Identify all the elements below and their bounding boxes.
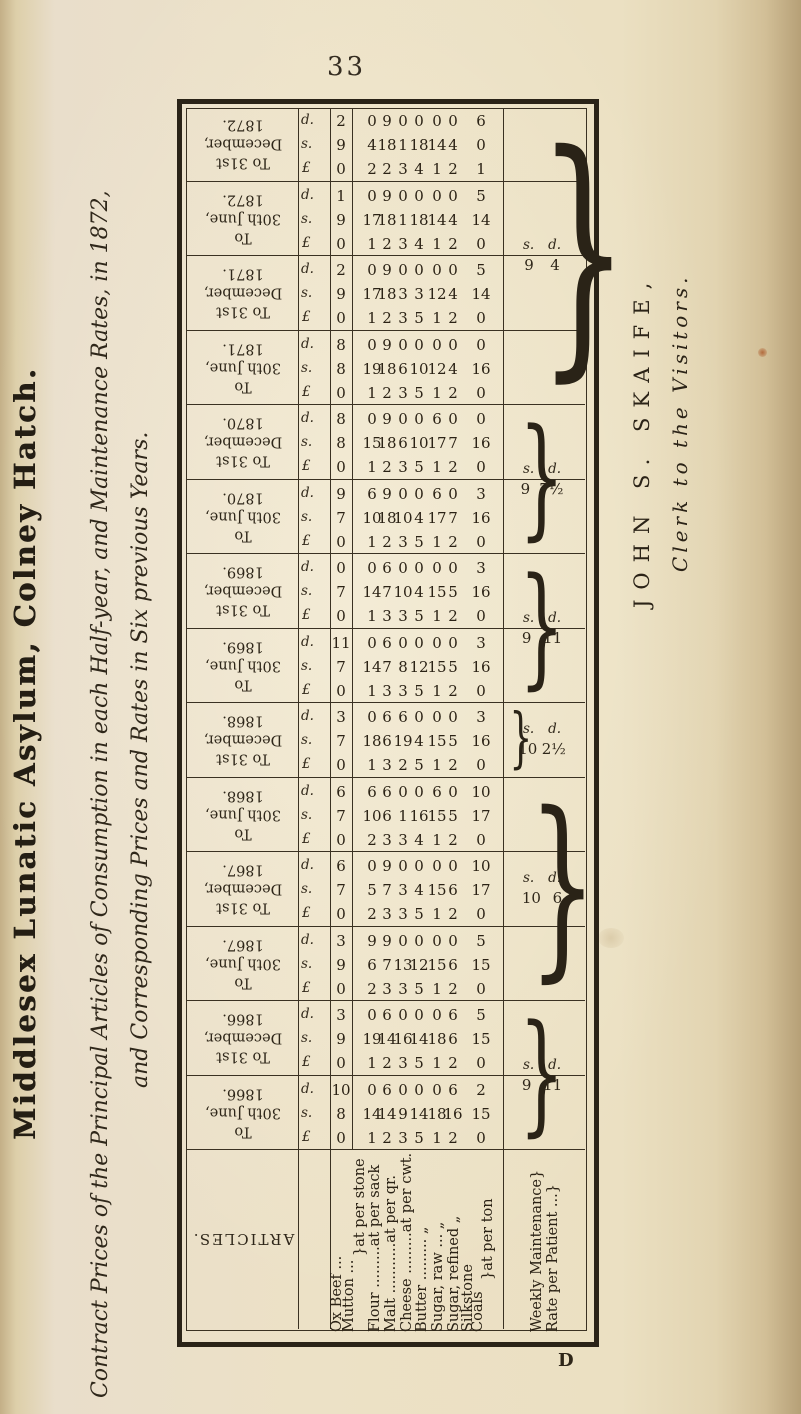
price-shillings: 6 [438,881,468,899]
period-header-line: 30th June, [205,357,281,376]
pence-label: d. [301,708,314,724]
shillings-label: s. [301,732,312,748]
price-pounds: 0 [326,905,356,923]
period-header-line: December, [204,432,282,451]
shillings-label: s. [301,136,312,152]
price-pence: 6 [466,112,496,130]
period-header: To30th June,1868. [190,777,296,852]
price-pounds: 2 [438,309,468,327]
price-pounds: 2 [438,235,468,253]
pounds-label: £ [302,756,311,772]
pence-label: d. [301,932,314,948]
pounds-label: £ [302,458,311,474]
period-header: To 31stDecember,1867. [190,851,296,926]
price-pounds: 0 [326,980,356,998]
price-shillings: 7 [326,807,356,825]
period-header-line: 1866. [222,1083,264,1102]
pounds-label: £ [302,160,311,176]
pounds-label: £ [302,235,311,251]
period-header: To30th June,1870. [190,479,296,554]
price-pounds: 0 [326,607,356,625]
price-pence: 3 [466,485,496,503]
period-header-line: To 31st [216,153,270,172]
period-header-line: 30th June, [205,953,281,972]
pounds-label: £ [302,309,311,325]
shillings-label: s. [301,360,312,376]
pence-label: d. [301,1081,314,1097]
shillings-label: s. [301,658,312,674]
rate-value: 106 [516,889,568,907]
price-pence: 11 [326,634,356,652]
period-header: To30th June,1867. [190,926,296,1001]
pence-label: d. [301,857,314,873]
period-header-line: 30th June, [205,1102,281,1121]
shillings-label: s. [301,881,312,897]
scanned-report-page: 33 Middlesex Lunatic Asylum, Colney Hatc… [0,0,801,1414]
price-pounds: 2 [438,905,468,923]
price-shillings: 17 [466,881,496,899]
rate-sd-header: s.d. [516,237,568,253]
period-header-line: To [234,525,251,544]
price-pence: 0 [438,336,468,354]
period-header-line: To 31st [216,600,270,619]
price-shillings: 4 [438,136,468,154]
price-shillings: 5 [438,807,468,825]
period-header-line: 1871. [222,264,264,283]
maintenance-rate: s.d.97½ [516,461,568,498]
period-header-line: 1867. [222,860,264,879]
rate-value: 97½ [516,480,568,498]
price-shillings: 8 [326,360,356,378]
price-shillings: 6 [438,956,468,974]
shillings-label: s. [301,211,312,227]
column-rule [298,108,299,1329]
shillings-label: s. [301,807,312,823]
period-header: To 31stDecember,1871. [190,255,296,330]
price-shillings: 16 [466,360,496,378]
price-pence: 2 [326,112,356,130]
price-pence: 9 [326,485,356,503]
price-pounds: 0 [466,384,496,402]
price-pounds: 0 [326,682,356,700]
price-shillings: 16 [466,509,496,527]
period-header: To 31stDecember,1869. [190,553,296,628]
shillings-label: s. [301,509,312,525]
period-header-line: December, [204,879,282,898]
price-pounds: 0 [466,458,496,476]
price-pence: 10 [466,783,496,801]
price-pence: 0 [438,932,468,950]
price-pence: 0 [466,410,496,428]
shillings-label: s. [301,956,312,972]
price-pounds: 1 [466,160,496,178]
price-pounds: 0 [466,533,496,551]
period-header-line: To 31st [216,749,270,768]
pounds-label: £ [302,533,311,549]
pounds-label: £ [302,607,311,623]
period-header-line: 1866. [222,1009,264,1028]
price-shillings: 5 [438,658,468,676]
period-header-line: 30th June, [205,506,281,525]
price-pence: 6 [438,1006,468,1024]
period-header: To 31stDecember,1872. [190,106,296,181]
pence-label: d. [301,410,314,426]
period-header-line: December, [204,1028,282,1047]
period-header-line: December, [204,134,282,153]
period-header: To30th June,1872. [190,181,296,256]
period-header: To30th June,1869. [190,628,296,703]
price-pence: 0 [438,485,468,503]
price-shillings: 0 [466,136,496,154]
price-pounds: 2 [438,458,468,476]
price-pounds: 0 [326,1054,356,1072]
price-pence: 0 [438,634,468,652]
period-header-line: 1870. [222,487,264,506]
pounds-label: £ [302,905,311,921]
price-shillings: 7 [326,509,356,527]
pounds-label: £ [302,682,311,698]
rate-sd-header: s.d. [516,721,568,737]
price-pounds: 0 [466,235,496,253]
maintenance-rate: s.d.911 [516,1057,568,1094]
price-pence: 10 [466,857,496,875]
period-header-line: To 31st [216,451,270,470]
period-header-line: To 31st [216,302,270,321]
price-pence: 3 [466,634,496,652]
price-shillings: 9 [326,956,356,974]
price-pence: 0 [438,559,468,577]
shillings-label: s. [301,285,312,301]
price-pounds: 2 [438,682,468,700]
price-pounds: 2 [438,756,468,774]
price-shillings: 7 [438,434,468,452]
price-pounds: 2 [438,160,468,178]
pence-label: d. [301,261,314,277]
price-shillings: 7 [326,658,356,676]
price-pence: 3 [466,708,496,726]
price-pence: 5 [466,1006,496,1024]
period-header-line: To [234,823,251,842]
price-pence: 5 [466,261,496,279]
price-pence: 3 [326,932,356,950]
price-pence: 8 [326,336,356,354]
pence-label: d. [301,187,314,203]
price-pounds: 0 [466,1054,496,1072]
shillings-label: s. [301,1105,312,1121]
price-pence: 1 [326,187,356,205]
price-shillings: 15 [466,1030,496,1048]
price-shillings: 4 [438,360,468,378]
article-name: Rate per Patient ...} [545,1155,563,1332]
signature-name: JOHN S. SKAIFE, [630,273,654,608]
price-pounds: 0 [466,309,496,327]
price-pounds: 2 [438,831,468,849]
price-shillings: 6 [438,1030,468,1048]
period-header: To 31stDecember,1870. [190,404,296,479]
period-header-line: December, [204,283,282,302]
period-header-line: To [234,674,251,693]
price-shillings: 7 [326,881,356,899]
pounds-label: £ [302,1129,311,1145]
price-shillings: 16 [466,732,496,750]
pounds-label: £ [302,1054,311,1070]
price-pence: 0 [466,336,496,354]
period-header-line: 1867. [222,934,264,953]
price-shillings: 16 [466,583,496,601]
signature-role: Clerk to the Visitors. [668,273,692,572]
period-header-line: 1869. [222,636,264,655]
rate-value: 102½ [516,740,568,758]
price-shillings: 9 [326,285,356,303]
articles-header-cell: ARTICLES. [190,1149,296,1330]
period-header: To 31stDecember,1868. [190,702,296,777]
foxing-spot [758,348,767,357]
period-header-line: 30th June, [205,208,281,227]
column-rule [503,108,504,1329]
period-header-line: 1869. [222,562,264,581]
price-shillings: 7 [326,583,356,601]
price-pounds: 0 [326,235,356,253]
price-pence: 3 [326,708,356,726]
shillings-label: s. [301,1030,312,1046]
price-pence: 6 [326,857,356,875]
shillings-label: s. [301,434,312,450]
period-header-line: 30th June, [205,655,281,674]
price-shillings: 5 [438,732,468,750]
maintenance-rate: s.d.911 [516,610,568,647]
price-shillings: 9 [326,211,356,229]
price-shillings: 16 [466,658,496,676]
price-pence: 0 [438,410,468,428]
rate-value: 911 [516,1076,568,1094]
price-shillings: 7 [438,509,468,527]
price-pence: 3 [326,1006,356,1024]
pence-label: d. [301,336,314,352]
pence-label: d. [301,783,314,799]
price-pounds: 0 [326,384,356,402]
period-header: To30th June,1866. [190,1075,296,1150]
price-shillings: 16 [466,434,496,452]
pence-label: d. [301,1006,314,1022]
period-header-line: To [234,376,251,395]
price-pence: 0 [438,783,468,801]
price-pounds: 0 [326,160,356,178]
page-number: 33 [327,52,366,82]
maintenance-rate: s.d.106 [516,870,568,907]
price-pence: 6 [326,783,356,801]
price-pence: 5 [466,932,496,950]
period-header-line: To 31st [216,1047,270,1066]
price-pounds: 0 [326,756,356,774]
period-header-line: 1872. [222,189,264,208]
price-pounds: 0 [466,980,496,998]
period-header-line: 1872. [222,115,264,134]
price-shillings: 14 [466,211,496,229]
rate-value: 94 [516,256,568,274]
price-shillings: 9 [326,136,356,154]
price-shillings: 8 [326,434,356,452]
price-pence: 6 [438,1081,468,1099]
printers-signature-mark: D [558,1350,574,1371]
table-title-line2: and Corresponding Prices and Rates in Si… [128,432,153,1088]
period-header: To30th June,1871. [190,330,296,405]
price-shillings: 4 [438,285,468,303]
price-pounds: 0 [466,831,496,849]
price-shillings: 15 [466,956,496,974]
price-shillings: 16 [438,1105,468,1123]
period-header-line: To [234,972,251,991]
price-pence: 0 [438,112,468,130]
price-pence: 8 [326,410,356,428]
foxing-spot [598,928,624,948]
period-header-line: 1871. [222,338,264,357]
price-pence: 0 [438,857,468,875]
price-pounds: 2 [438,980,468,998]
period-header-line: 1870. [222,413,264,432]
period-header-line: 30th June, [205,804,281,823]
price-pence: 2 [326,261,356,279]
price-pounds: 0 [466,607,496,625]
rate-value: 911 [516,629,568,647]
shillings-label: s. [301,583,312,599]
price-pence: 0 [326,559,356,577]
period-header-line: To [234,227,251,246]
price-pounds: 2 [438,607,468,625]
table-title-line1: Contract Prices of the Principal Article… [88,190,113,1398]
price-pounds: 0 [466,682,496,700]
price-pounds: 2 [438,384,468,402]
price-pence: 0 [438,187,468,205]
price-pence: 0 [438,708,468,726]
pence-label: d. [301,559,314,575]
rate-sd-header: s.d. [516,1057,568,1073]
price-pounds: 0 [326,831,356,849]
period-header-line: December, [204,581,282,600]
rate-sd-header: s.d. [516,870,568,886]
period-header-line: To [234,1121,251,1140]
price-pounds: 2 [438,533,468,551]
price-pence: 0 [438,261,468,279]
rate-sd-header: s.d. [516,461,568,477]
price-shillings: 14 [466,285,496,303]
price-pounds: 0 [326,533,356,551]
pounds-label: £ [302,831,311,847]
price-shillings: 7 [326,732,356,750]
price-pence: 2 [466,1081,496,1099]
price-pounds: 2 [438,1054,468,1072]
price-pounds: 0 [326,309,356,327]
period-header-line: To 31st [216,898,270,917]
price-shillings: 5 [438,583,468,601]
pence-label: d. [301,485,314,501]
pounds-label: £ [302,980,311,996]
period-header-line: 1868. [222,785,264,804]
price-pounds: 0 [466,905,496,923]
maintenance-rate: s.d.102½ [516,721,568,758]
period-header-line: 1868. [222,711,264,730]
price-pence: 5 [466,187,496,205]
price-shillings: 4 [438,211,468,229]
price-pounds: 2 [438,1129,468,1147]
pence-label: d. [301,634,314,650]
running-side-heading: Middlesex Lunatic Asylum, Colney Hatch. [8,367,42,1140]
maintenance-rate: s.d.94 [516,237,568,274]
price-shillings: 9 [326,1030,356,1048]
pence-label: d. [301,112,314,128]
pounds-label: £ [302,384,311,400]
price-pence: 3 [466,559,496,577]
price-shillings: 17 [466,807,496,825]
rate-sd-header: s.d. [516,610,568,626]
price-pounds: 0 [466,756,496,774]
period-header-line: December, [204,730,282,749]
article-name: }at per ton [480,1103,498,1332]
price-pounds: 0 [326,458,356,476]
period-header: To 31stDecember,1866. [190,1000,296,1075]
